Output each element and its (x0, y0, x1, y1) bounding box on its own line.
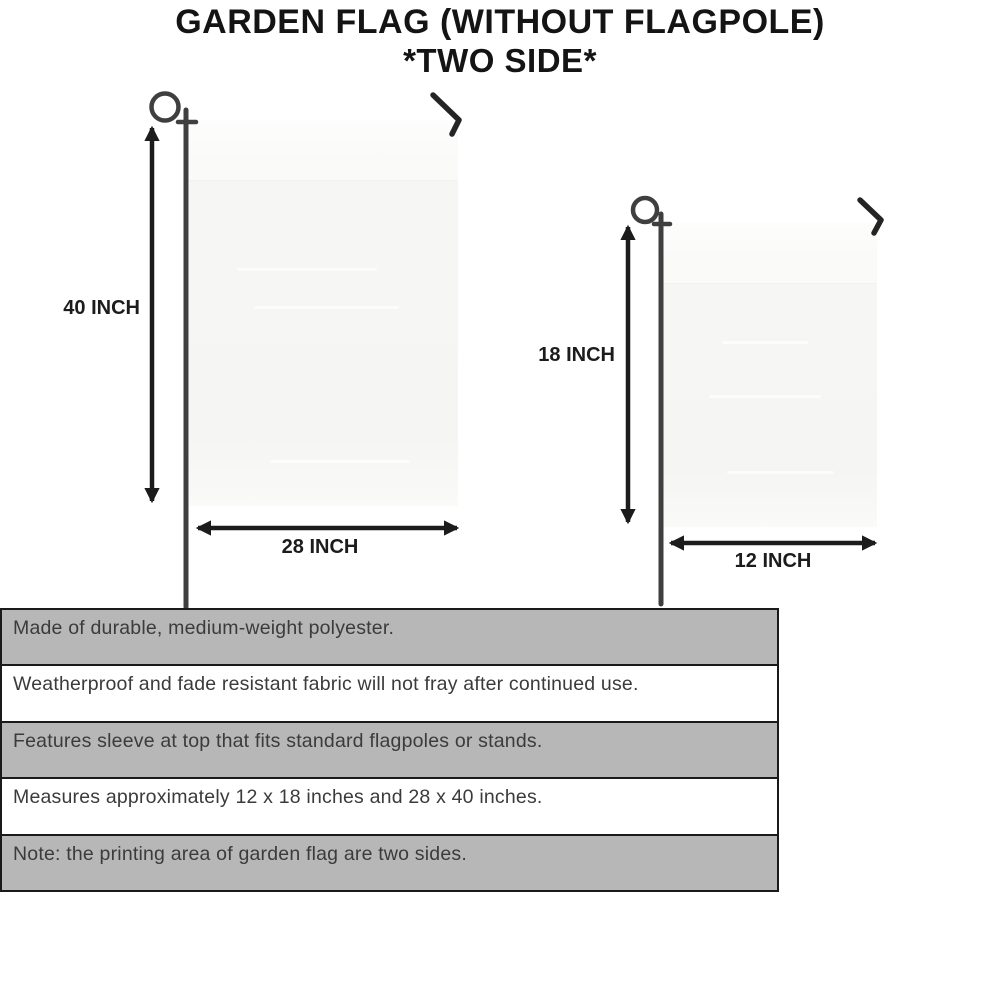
feature-row-sleeve: Features sleeve at top that fits standar… (2, 723, 777, 779)
large-flag-height-label: 40 INCH (55, 297, 140, 320)
feature-text: Weatherproof and fade resistant fabric w… (13, 673, 639, 695)
large-flag-hook-icon (433, 95, 459, 134)
feature-row-measures: Measures approximately 12 x 18 inches an… (2, 779, 777, 835)
feature-text: Measures approximately 12 x 18 inches an… (13, 786, 543, 808)
feature-table: Made of durable, medium-weight polyester… (0, 608, 779, 892)
feature-text: Features sleeve at top that fits standar… (13, 730, 542, 752)
small-flag-hook-icon (860, 200, 881, 233)
garden-flag-infographic: GARDEN FLAG (WITHOUT FLAGPOLE) *TWO SIDE… (0, 0, 1000, 1000)
feature-text: Note: the printing area of garden flag a… (13, 843, 467, 865)
feature-row-note: Note: the printing area of garden flag a… (2, 836, 777, 890)
large-flag-width-label: 28 INCH (245, 536, 395, 559)
small-flagpole (633, 198, 670, 604)
large-flagpole (152, 94, 197, 608)
feature-text: Made of durable, medium-weight polyester… (13, 617, 394, 639)
small-flag-height-label: 18 INCH (530, 344, 615, 367)
feature-row-material: Made of durable, medium-weight polyester… (2, 610, 777, 666)
feature-row-weatherproof: Weatherproof and fade resistant fabric w… (2, 666, 777, 722)
small-flag-width-label: 12 INCH (698, 550, 848, 573)
